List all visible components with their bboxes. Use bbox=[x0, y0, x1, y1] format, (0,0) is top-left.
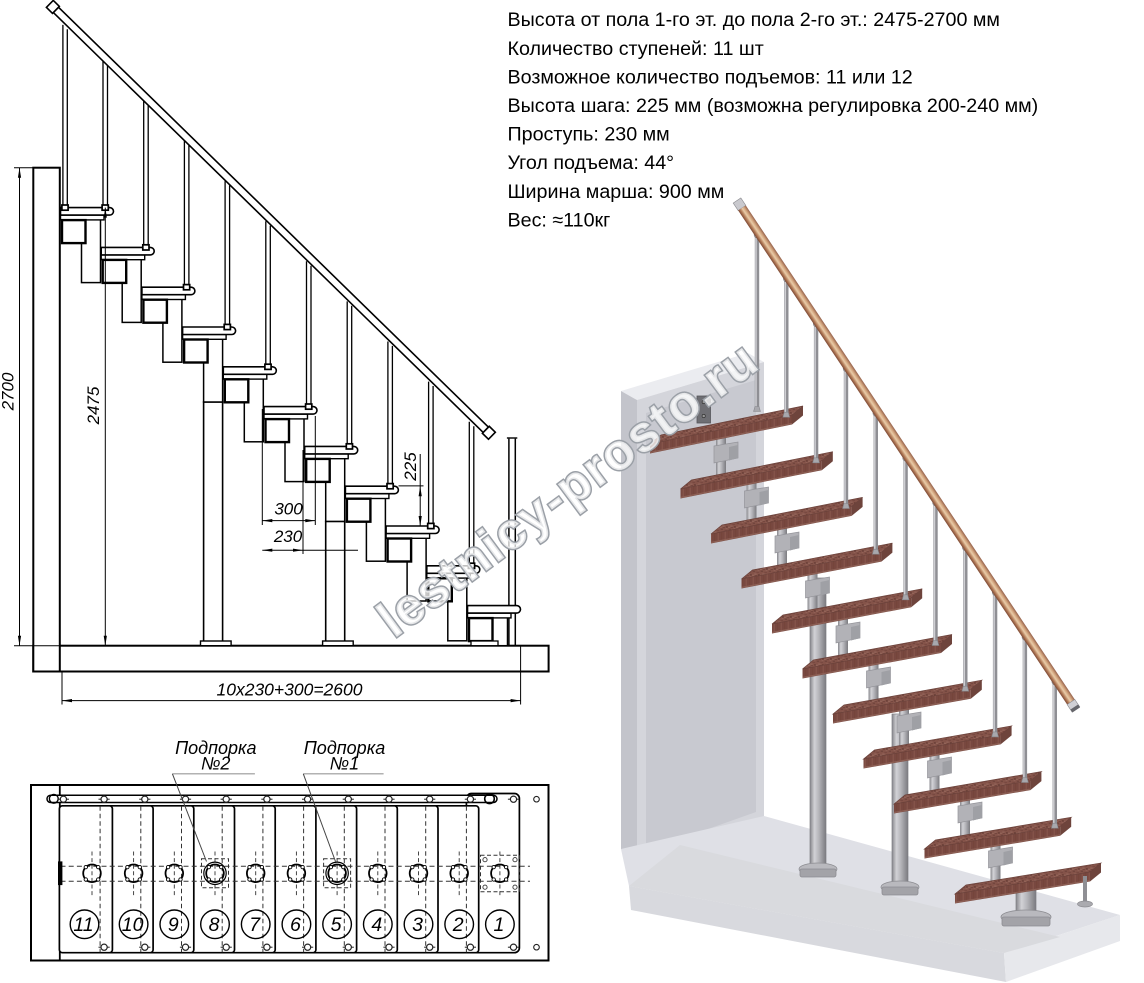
svg-text:Высота шага: 225 мм (возможна: Высота шага: 225 мм (возможна регулировк… bbox=[508, 95, 1039, 117]
svg-text:Высота от пола 1-го эт. до пол: Высота от пола 1-го эт. до пола 2-го эт.… bbox=[508, 9, 1000, 31]
svg-text:2700: 2700 bbox=[0, 372, 18, 411]
svg-text:4: 4 bbox=[371, 914, 382, 936]
svg-text:Ширина марша: 900 мм: Ширина марша: 900 мм bbox=[508, 181, 725, 203]
svg-text:10x230+300=2600: 10x230+300=2600 bbox=[217, 680, 363, 700]
svg-text:10: 10 bbox=[122, 914, 144, 936]
svg-text:5: 5 bbox=[331, 914, 342, 936]
svg-text:2475: 2475 bbox=[84, 386, 103, 425]
svg-text:1: 1 bbox=[493, 914, 504, 936]
svg-text:8: 8 bbox=[209, 914, 220, 936]
svg-text:№1: №1 bbox=[330, 754, 360, 774]
svg-text:230: 230 bbox=[273, 527, 303, 546]
svg-text:9: 9 bbox=[168, 914, 179, 936]
svg-text:300: 300 bbox=[274, 500, 303, 519]
svg-text:Количество ступеней: 11 шт: Количество ступеней: 11 шт bbox=[508, 38, 764, 60]
svg-text:Вес: ≈110кг: Вес: ≈110кг bbox=[508, 209, 611, 231]
svg-text:2: 2 bbox=[452, 914, 464, 936]
svg-text:№2: №2 bbox=[201, 754, 231, 774]
svg-text:Угол подъема: 44°: Угол подъема: 44° bbox=[508, 152, 675, 174]
svg-text:225: 225 bbox=[401, 452, 420, 482]
svg-text:6: 6 bbox=[290, 914, 301, 936]
svg-text:3: 3 bbox=[412, 914, 423, 936]
svg-text:7: 7 bbox=[249, 914, 261, 936]
svg-text:Возможное количество подъемов:: Возможное количество подъемов: 11 или 12 bbox=[508, 66, 913, 88]
svg-text:Проступь: 230 мм: Проступь: 230 мм bbox=[508, 124, 670, 146]
svg-text:11: 11 bbox=[73, 914, 93, 936]
